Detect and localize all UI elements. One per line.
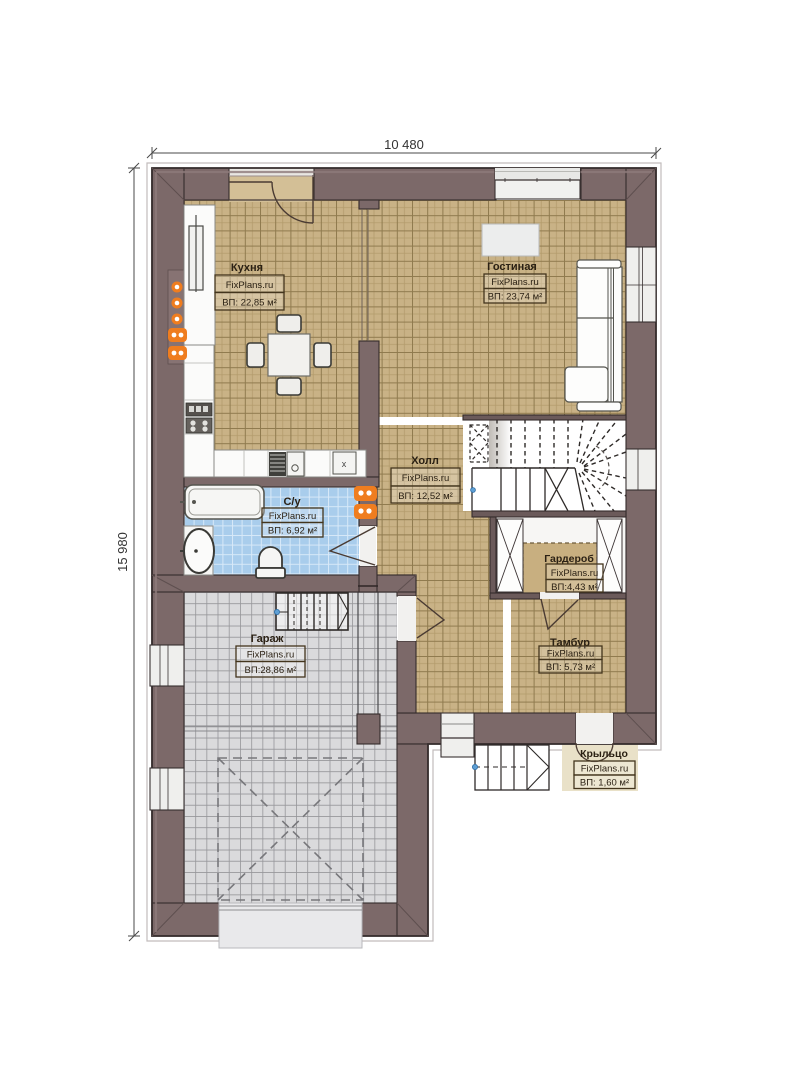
svg-text:ВП: 1,60 м²: ВП: 1,60 м²: [580, 778, 629, 789]
svg-text:ВП:4,43 м²: ВП:4,43 м²: [551, 582, 598, 593]
svg-text:ВП: 23,74 м²: ВП: 23,74 м²: [488, 292, 543, 303]
svg-text:FixPlans.ru: FixPlans.ru: [247, 650, 295, 661]
svg-text:x: x: [342, 459, 347, 469]
svg-text:15 980: 15 980: [115, 532, 130, 572]
svg-text:FixPlans.ru: FixPlans.ru: [226, 280, 274, 291]
svg-text:10 480: 10 480: [384, 137, 424, 152]
svg-text:FixPlans.ru: FixPlans.ru: [547, 649, 595, 660]
svg-text:ВП:28,86 м²: ВП:28,86 м²: [245, 665, 297, 676]
svg-text:FixPlans.ru: FixPlans.ru: [551, 568, 599, 579]
svg-text:ВП: 12,52 м²: ВП: 12,52 м²: [398, 491, 453, 502]
svg-text:Гардероб: Гардероб: [544, 553, 594, 565]
svg-text:Кухня: Кухня: [231, 262, 263, 274]
svg-text:Крыльцо: Крыльцо: [580, 748, 628, 760]
svg-text:FixPlans.ru: FixPlans.ru: [491, 277, 539, 288]
svg-text:FixPlans.ru: FixPlans.ru: [402, 473, 450, 484]
svg-text:Холл: Холл: [411, 455, 439, 467]
svg-text:ВП: 6,92 м²: ВП: 6,92 м²: [268, 526, 317, 537]
svg-text:FixPlans.ru: FixPlans.ru: [581, 764, 629, 775]
svg-text:FixPlans.ru: FixPlans.ru: [269, 511, 317, 522]
svg-text:Гараж: Гараж: [251, 633, 284, 645]
svg-text:Гостиная: Гостиная: [487, 261, 537, 273]
svg-text:ВП: 5,73 м²: ВП: 5,73 м²: [546, 662, 595, 673]
svg-text:С/у: С/у: [283, 496, 301, 508]
svg-text:ВП: 22,85 м²: ВП: 22,85 м²: [222, 298, 277, 309]
